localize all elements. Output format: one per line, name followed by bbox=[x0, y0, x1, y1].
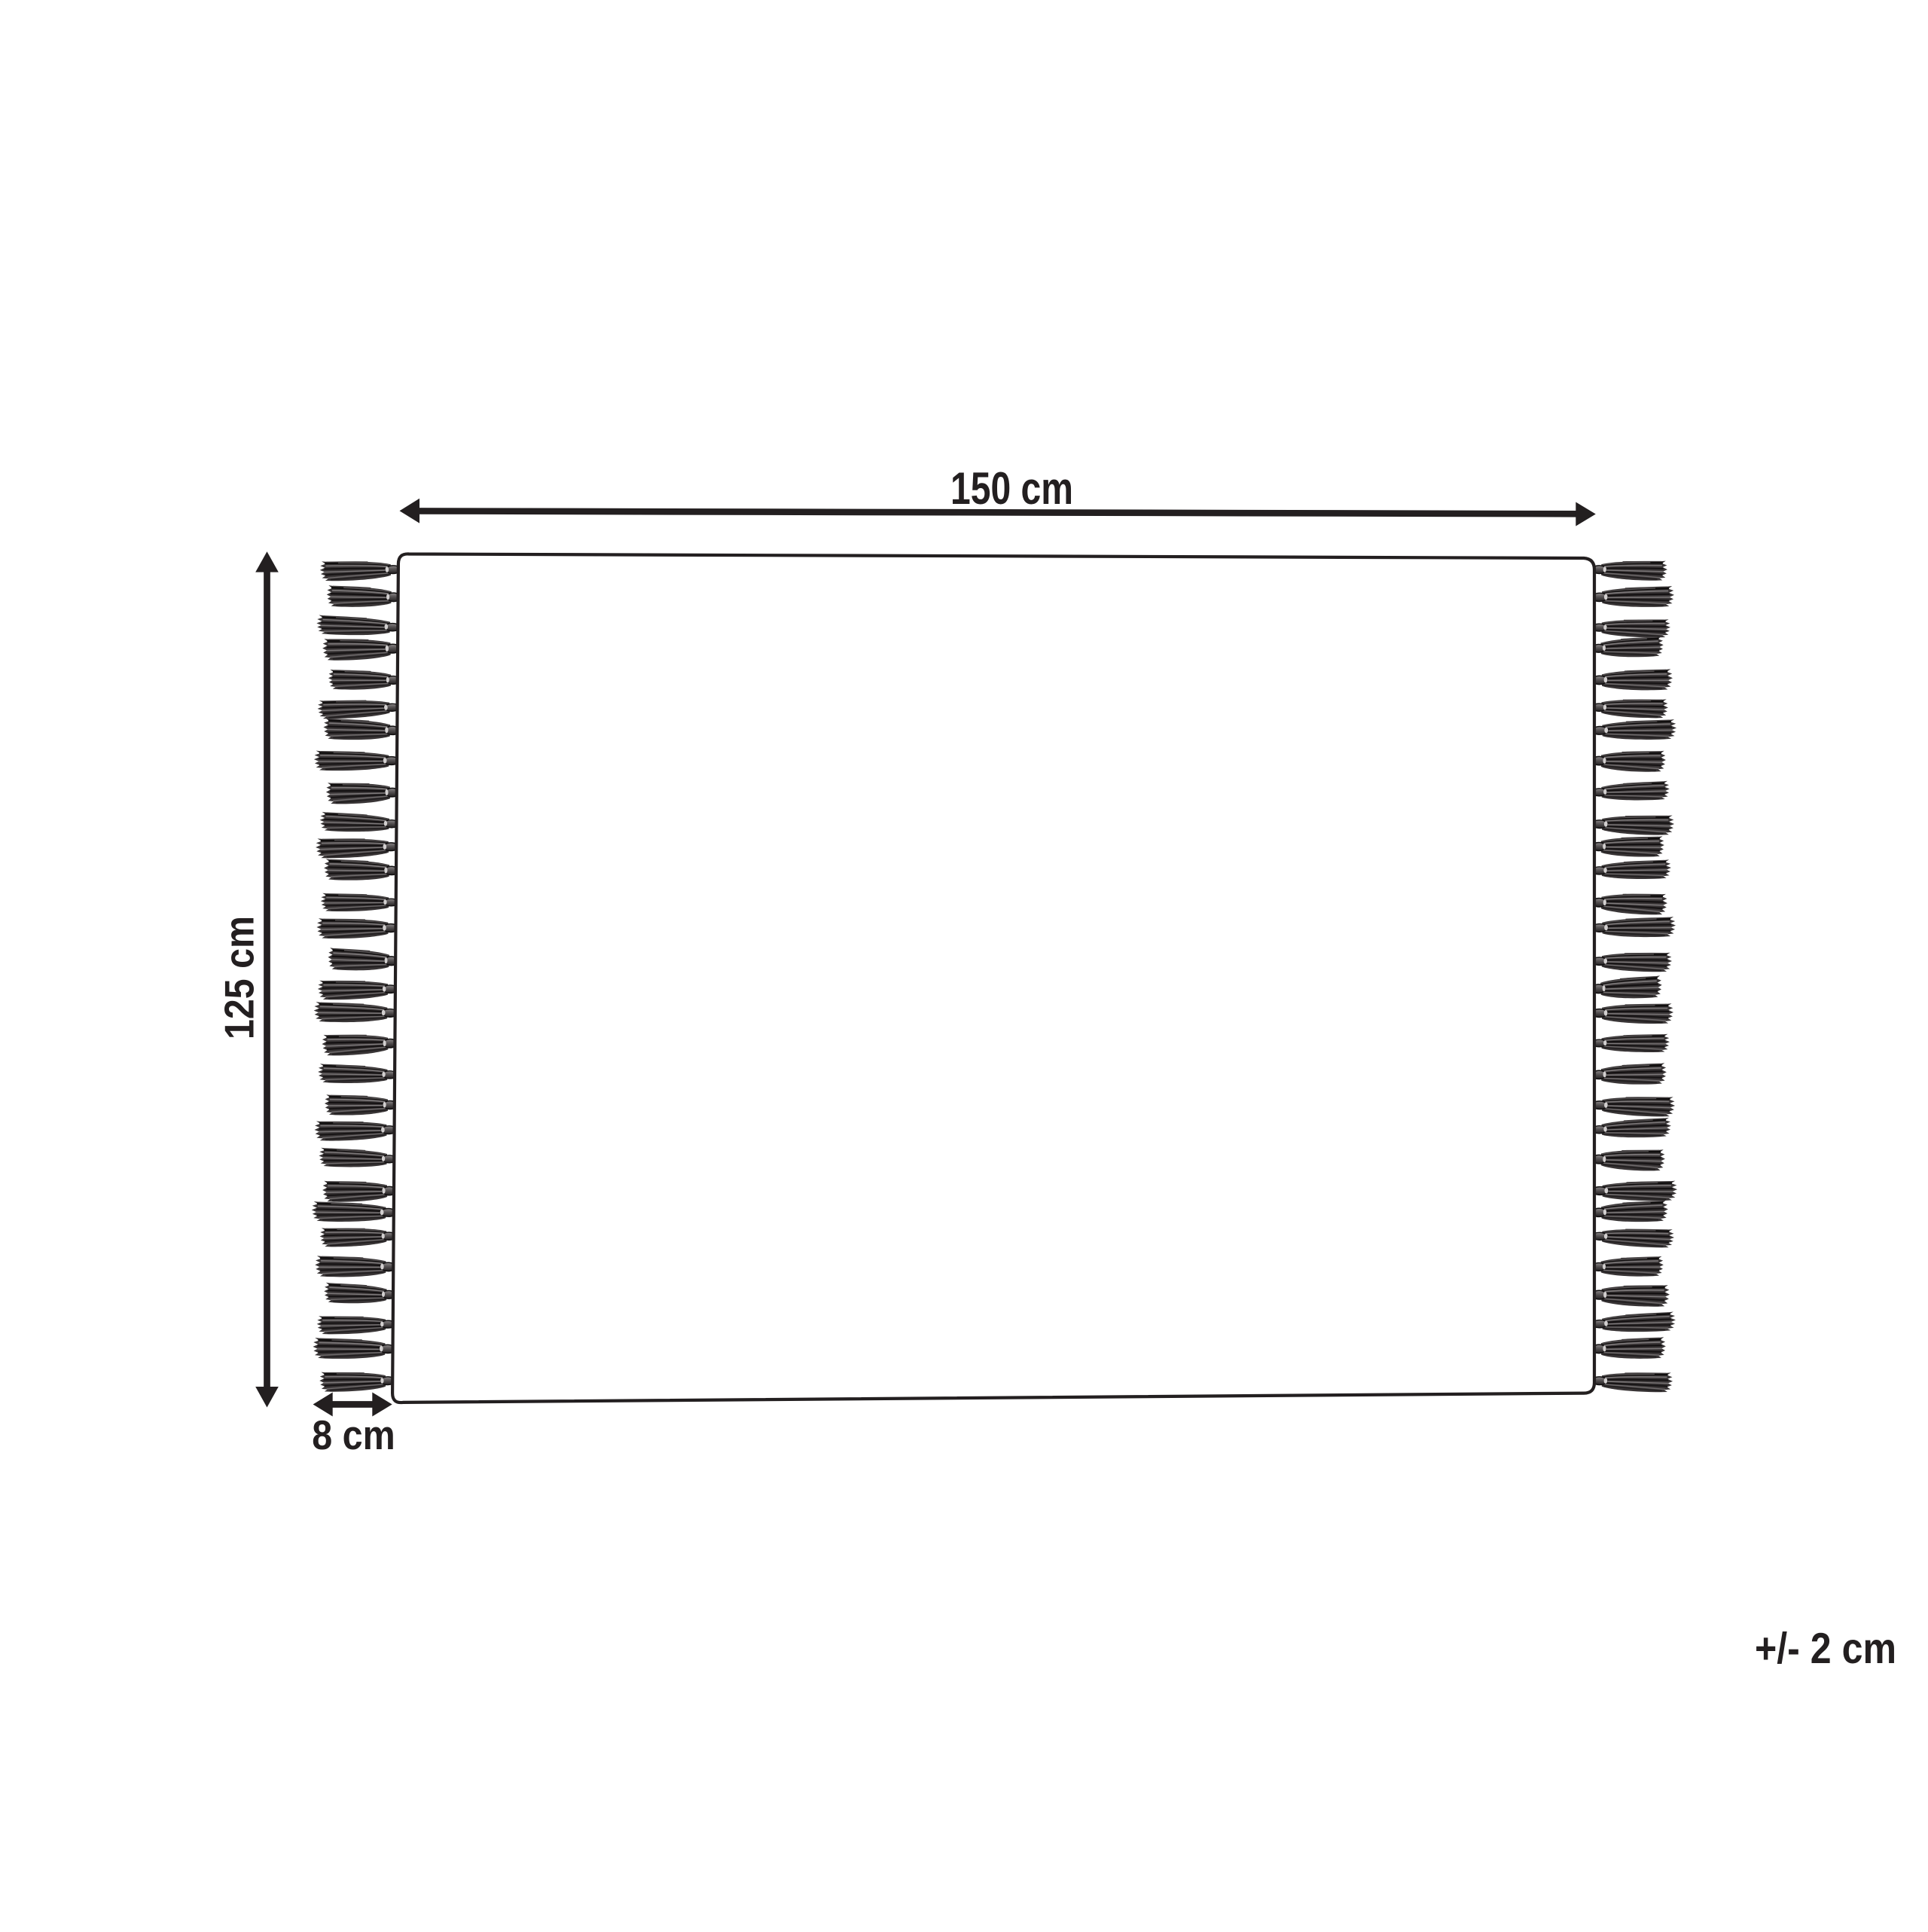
svg-text:150 cm: 150 cm bbox=[950, 462, 1073, 514]
svg-text:125 cm: 125 cm bbox=[216, 916, 263, 1039]
svg-text:8 cm: 8 cm bbox=[312, 1412, 395, 1458]
svg-text:+/- 2 cm: +/- 2 cm bbox=[1755, 1625, 1896, 1673]
